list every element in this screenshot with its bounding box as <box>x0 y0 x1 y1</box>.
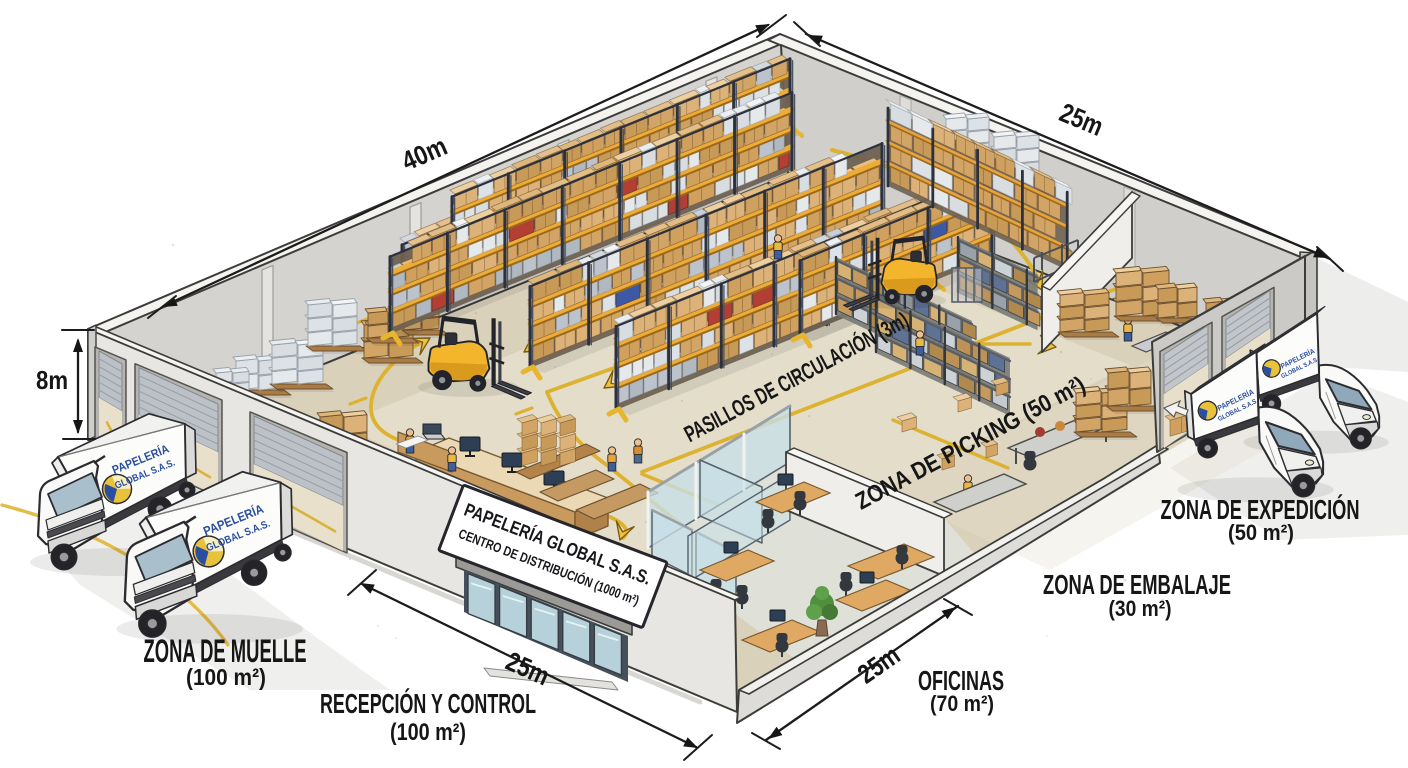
svg-text:(100 m²): (100 m²) <box>186 664 266 690</box>
svg-text:8m: 8m <box>36 365 68 395</box>
svg-text:(100 m²): (100 m²) <box>390 719 466 746</box>
svg-text:(30 m²): (30 m²) <box>1109 596 1172 621</box>
svg-text:(70 m²): (70 m²) <box>930 691 994 716</box>
svg-text:(50 m²): (50 m²) <box>1228 520 1294 545</box>
svg-text:RECEPCIÓN Y CONTROL: RECEPCIÓN Y CONTROL <box>320 688 536 719</box>
